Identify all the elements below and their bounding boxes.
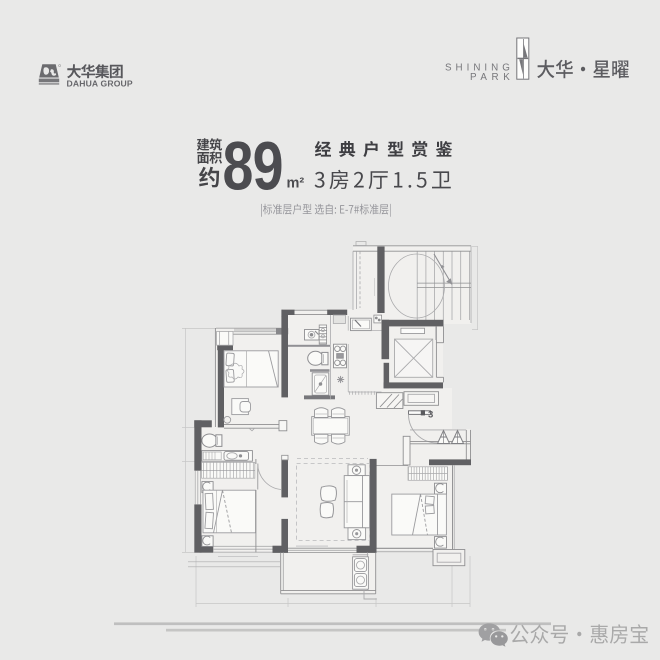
svg-text:3: 3 <box>428 410 433 421</box>
